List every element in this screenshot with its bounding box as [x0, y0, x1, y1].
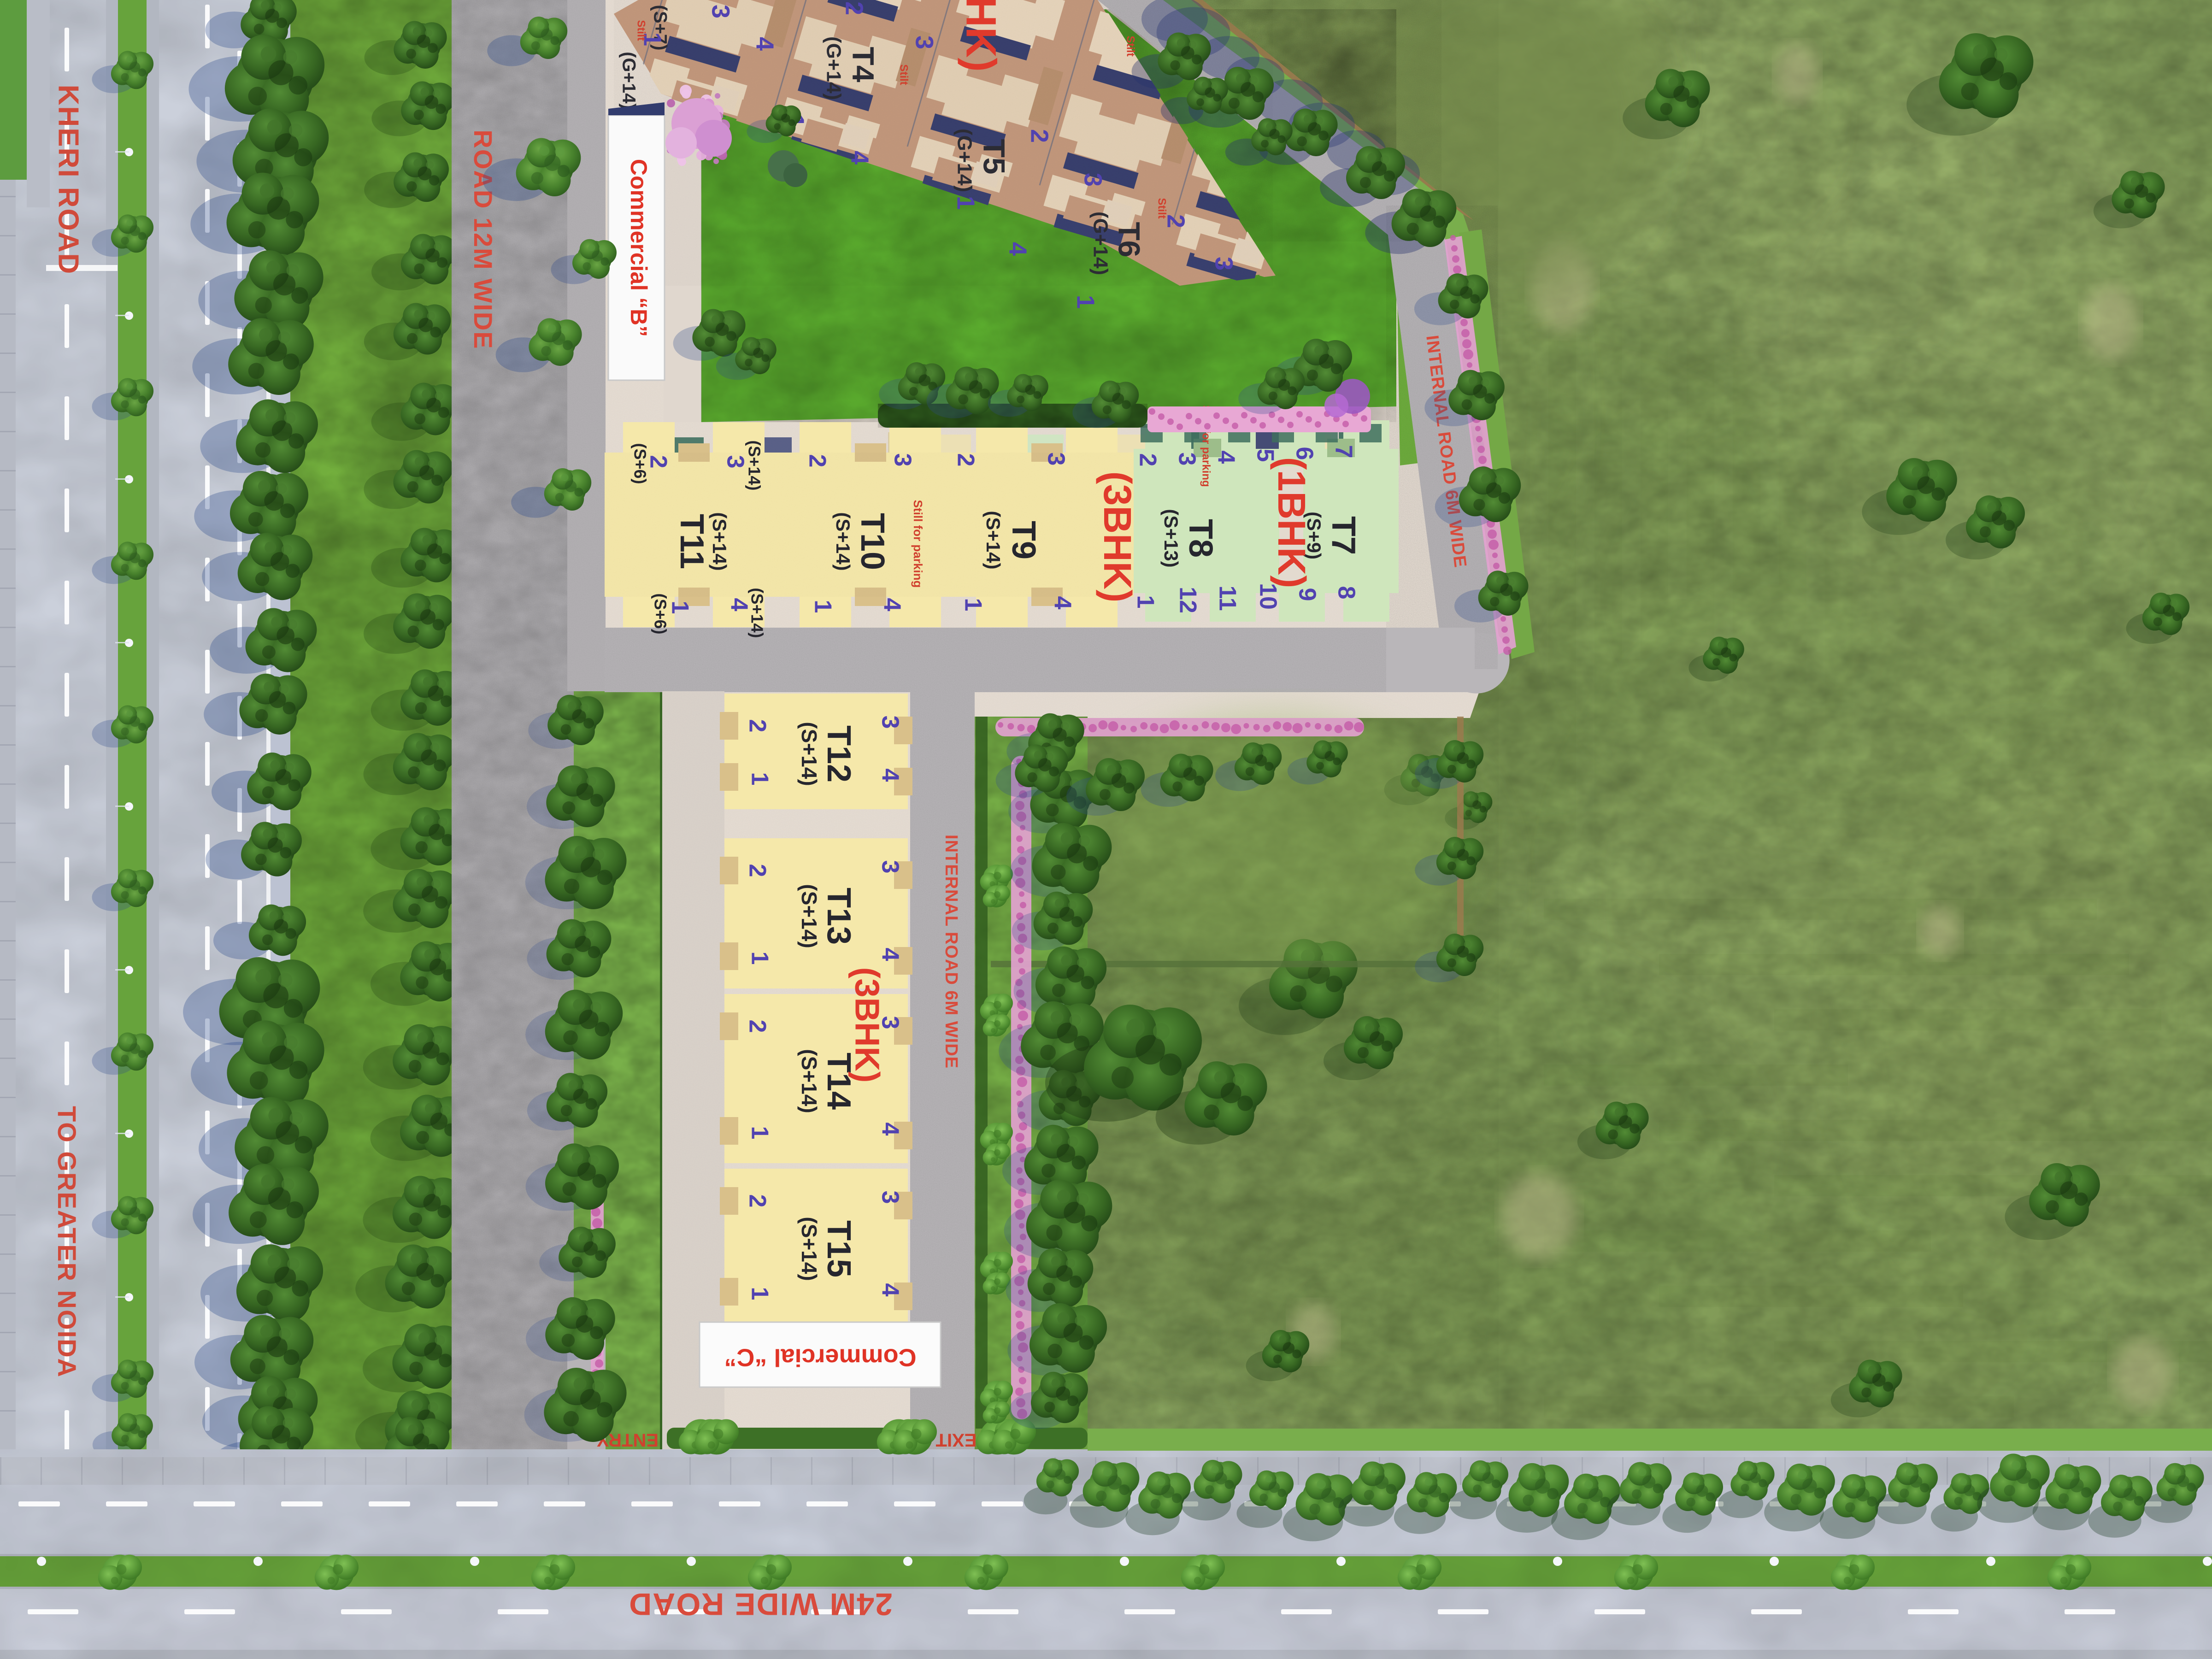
svg-text:(G+14): (G+14) [822, 36, 845, 100]
svg-text:4: 4 [1212, 451, 1239, 464]
svg-text:EXIT: EXIT [936, 1430, 977, 1450]
svg-text:3: 3 [722, 455, 748, 469]
svg-text:4: 4 [751, 37, 779, 51]
svg-text:1: 1 [952, 196, 980, 210]
svg-text:24M WIDE ROAD: 24M WIDE ROAD [628, 1587, 893, 1622]
svg-text:3: 3 [1079, 173, 1107, 187]
svg-text:1: 1 [959, 598, 986, 612]
svg-text:(3BHK): (3BHK) [958, 0, 1005, 72]
svg-text:4: 4 [877, 948, 903, 961]
svg-text:T5: T5 [977, 139, 1012, 174]
svg-text:T6: T6 [1112, 222, 1147, 257]
svg-text:4: 4 [877, 1283, 903, 1297]
svg-text:T8: T8 [1182, 519, 1219, 558]
svg-text:2: 2 [1134, 453, 1161, 467]
svg-text:2: 2 [804, 454, 830, 468]
svg-text:11: 11 [1214, 586, 1241, 611]
svg-text:T10: T10 [854, 513, 891, 570]
svg-text:3: 3 [1042, 453, 1069, 466]
svg-text:3: 3 [877, 860, 903, 874]
svg-text:(3BHK): (3BHK) [1096, 471, 1139, 603]
svg-text:Stilt: Stilt [635, 20, 647, 41]
svg-text:(S+14): (S+14) [745, 440, 764, 490]
svg-text:2: 2 [744, 719, 771, 733]
svg-text:T12: T12 [820, 725, 857, 782]
svg-text:ROAD 12M WIDE: ROAD 12M WIDE [469, 129, 498, 349]
svg-text:(S+6): (S+6) [630, 443, 649, 484]
svg-text:1: 1 [1132, 595, 1159, 609]
svg-text:4: 4 [877, 769, 903, 782]
svg-text:Commercial “B”: Commercial “B” [626, 159, 652, 337]
svg-text:5: 5 [1252, 449, 1278, 462]
svg-text:(1BHK): (1BHK) [1270, 457, 1313, 588]
svg-text:(S+6): (S+6) [651, 593, 670, 634]
svg-text:9: 9 [1294, 588, 1320, 601]
svg-text:3: 3 [877, 1191, 903, 1204]
svg-text:1: 1 [1072, 295, 1100, 309]
svg-text:4: 4 [1004, 242, 1032, 256]
svg-text:7: 7 [1330, 445, 1357, 459]
svg-text:TO GREATER NOIDA: TO GREATER NOIDA [53, 1106, 82, 1378]
svg-text:(S+14): (S+14) [982, 511, 1004, 569]
svg-text:6: 6 [1291, 447, 1318, 460]
svg-text:2: 2 [952, 453, 979, 467]
svg-text:4: 4 [878, 598, 905, 612]
svg-text:(G+14): (G+14) [953, 129, 976, 192]
svg-text:Still for parking: Still for parking [911, 500, 925, 588]
svg-text:4: 4 [846, 151, 874, 165]
svg-text:T15: T15 [820, 1220, 857, 1277]
svg-text:3: 3 [1173, 453, 1200, 466]
svg-text:1: 1 [746, 1126, 773, 1140]
svg-text:T9: T9 [1005, 521, 1042, 559]
svg-text:Stilt: Stilt [1156, 198, 1168, 218]
svg-text:1: 1 [809, 600, 836, 613]
svg-text:T4: T4 [847, 47, 881, 82]
svg-text:Stilt: Stilt [898, 64, 910, 85]
svg-text:3: 3 [1210, 257, 1238, 271]
svg-text:1: 1 [746, 952, 773, 965]
svg-text:12: 12 [1174, 587, 1201, 613]
svg-text:3: 3 [707, 5, 735, 18]
svg-text:(3BHK): (3BHK) [848, 967, 886, 1083]
svg-text:2: 2 [744, 1020, 771, 1033]
svg-text:1: 1 [666, 601, 693, 614]
svg-text:10: 10 [1254, 583, 1281, 610]
svg-text:(S+14): (S+14) [797, 722, 821, 786]
svg-text:1: 1 [746, 772, 773, 786]
svg-text:T13: T13 [820, 888, 857, 945]
svg-text:KHERI ROAD: KHERI ROAD [53, 85, 84, 275]
svg-text:3: 3 [889, 453, 916, 467]
svg-text:4: 4 [877, 1123, 903, 1136]
svg-text:(S+14): (S+14) [797, 884, 821, 948]
svg-text:Commercial “C”: Commercial “C” [724, 1344, 916, 1371]
svg-text:2: 2 [744, 1194, 771, 1208]
svg-text:Stilt: Stilt [1124, 35, 1137, 56]
svg-text:3: 3 [877, 716, 903, 729]
svg-text:4: 4 [1049, 596, 1076, 610]
svg-text:(G+14): (G+14) [618, 52, 639, 110]
svg-text:1: 1 [746, 1287, 773, 1300]
svg-text:INTERNAL ROAD 6M WIDE: INTERNAL ROAD 6M WIDE [941, 835, 961, 1069]
svg-text:3: 3 [911, 35, 938, 49]
svg-text:(S+14): (S+14) [709, 512, 730, 571]
svg-text:2: 2 [1026, 129, 1053, 143]
svg-text:(S+14): (S+14) [832, 512, 854, 571]
svg-text:T11: T11 [673, 514, 710, 569]
svg-text:8: 8 [1333, 586, 1359, 600]
svg-text:T7: T7 [1325, 516, 1362, 555]
svg-text:2: 2 [744, 864, 771, 877]
svg-text:(S+14): (S+14) [747, 588, 766, 638]
svg-text:(S+14): (S+14) [797, 1049, 821, 1113]
svg-text:(S+14): (S+14) [797, 1217, 821, 1281]
svg-text:(G+14): (G+14) [1089, 212, 1112, 275]
svg-text:(S+13): (S+13) [1160, 509, 1182, 567]
svg-text:2: 2 [841, 1, 868, 15]
